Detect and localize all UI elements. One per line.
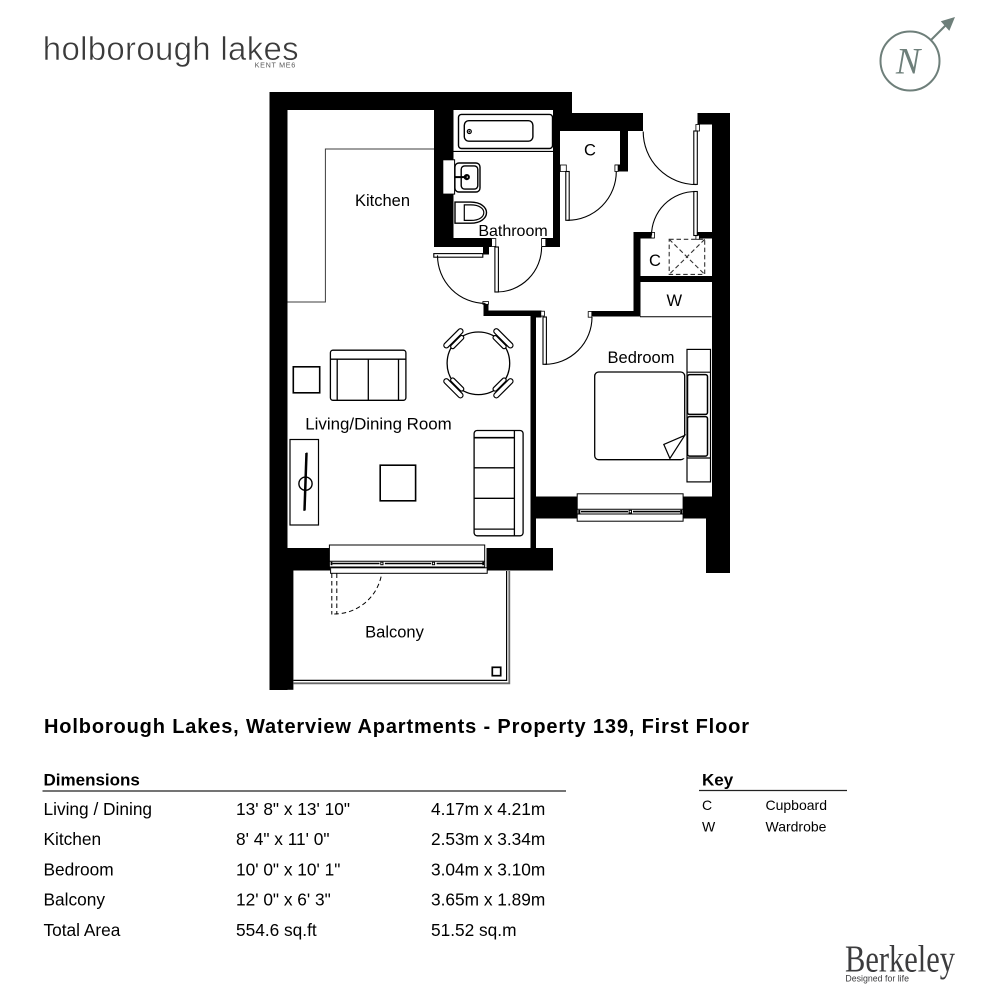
svg-text:10' 0" x 10' 1": 10' 0" x 10' 1" [236,859,340,879]
svg-text:Kitchen: Kitchen [355,192,410,210]
svg-text:554.6 sq.ft: 554.6 sq.ft [236,920,317,940]
svg-text:Balcony: Balcony [44,890,106,910]
svg-text:Balcony: Balcony [365,623,424,641]
svg-text:8' 4" x 11' 0": 8' 4" x 11' 0" [236,829,330,849]
svg-text:Kitchen: Kitchen [44,829,102,849]
svg-text:Living/Dining Room: Living/Dining Room [305,415,451,434]
svg-text:3.04m x 3.10m: 3.04m x 3.10m [431,859,545,879]
svg-text:Bathroom: Bathroom [478,223,547,240]
svg-text:C: C [649,252,661,270]
svg-text:Holborough Lakes, Waterview Ap: Holborough Lakes, Waterview Apartments -… [44,716,750,738]
svg-text:12' 0" x 6' 3": 12' 0" x 6' 3" [236,890,331,910]
svg-text:W: W [702,819,716,835]
svg-text:51.52 sq.m: 51.52 sq.m [431,920,517,940]
svg-text:C: C [702,797,712,813]
svg-text:3.65m x 1.89m: 3.65m x 1.89m [431,890,545,910]
svg-text:Bedroom: Bedroom [608,349,675,367]
svg-text:4.17m x 4.21m: 4.17m x 4.21m [431,799,545,819]
svg-text:N: N [895,41,923,82]
svg-text:Total Area: Total Area [44,920,121,940]
svg-text:2.53m x 3.34m: 2.53m x 3.34m [431,829,545,849]
svg-text:Key: Key [702,771,734,790]
svg-text:W: W [667,292,683,310]
svg-text:Living / Dining: Living / Dining [44,799,153,819]
svg-text:Cupboard: Cupboard [766,797,828,813]
svg-text:Wardrobe: Wardrobe [766,819,827,835]
svg-text:KENT ME6: KENT ME6 [255,61,296,70]
svg-text:Dimensions: Dimensions [44,771,140,790]
svg-text:13' 8" x 13' 10": 13' 8" x 13' 10" [236,799,350,819]
svg-text:Designed for life: Designed for life [845,974,909,984]
svg-text:Bedroom: Bedroom [44,859,114,879]
svg-text:C: C [584,141,596,159]
